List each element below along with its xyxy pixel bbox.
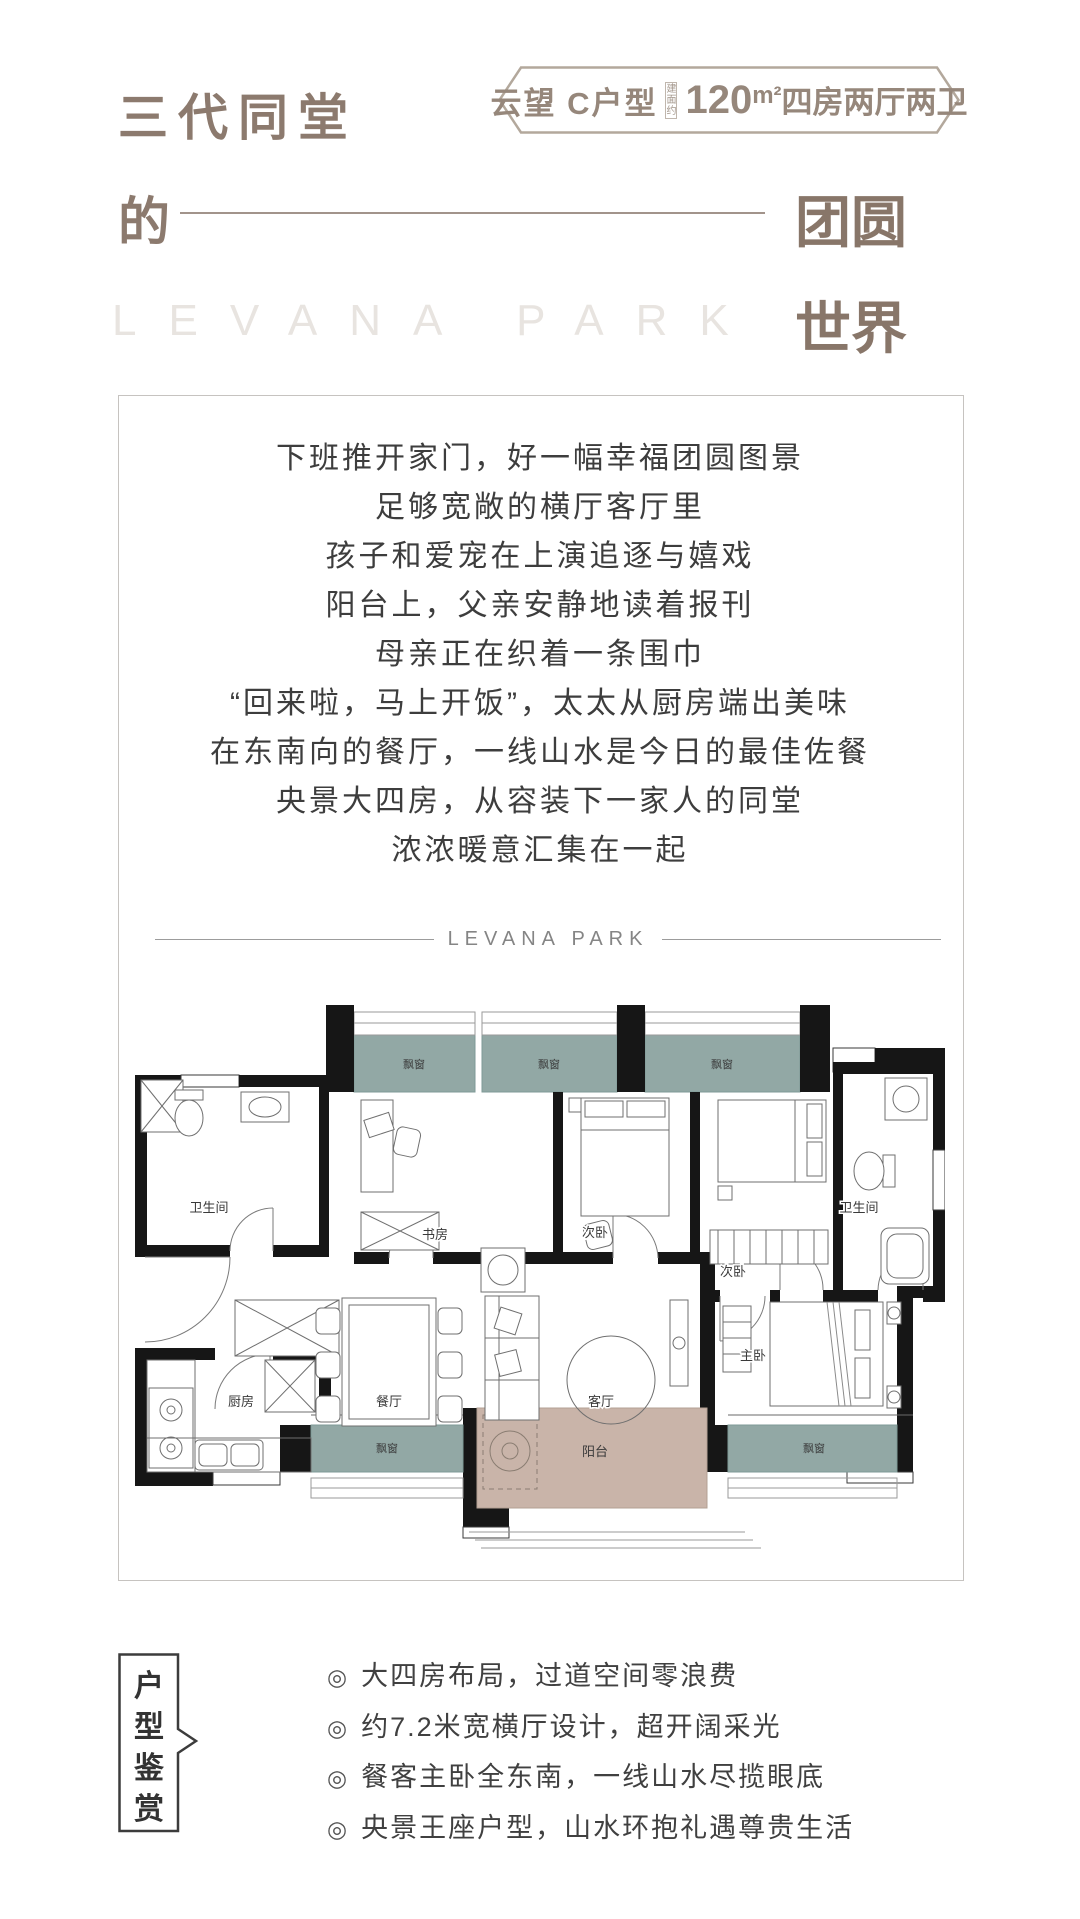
brand-watermark: LEVANA PARK xyxy=(112,296,761,346)
dining-label: 餐厅 xyxy=(376,1394,402,1409)
badge-area-rooms: 四房两厅两卫 xyxy=(782,77,968,122)
poem-line: 阳台上，父亲安静地读着报刊 xyxy=(118,581,962,630)
highlight-item: ◎大四房布局，过道空间零浪费 xyxy=(327,1652,854,1703)
furniture-living xyxy=(481,1248,688,1424)
badge-area: 120m²四房两厅两卫 xyxy=(685,77,967,123)
poem-line: 孩子和爱宠在上演追逐与嬉戏 xyxy=(118,532,962,581)
brand-divider: LEVANA PARK xyxy=(155,928,941,951)
bullet-icon: ◎ xyxy=(327,1664,349,1690)
furniture-bath-left xyxy=(141,1080,289,1136)
bay-window-label: 飘窗 xyxy=(376,1441,398,1455)
page-title-particle: 的 xyxy=(118,180,170,255)
poem-line: 在东南向的餐厅，一线山水是今日的最佳佐餐 xyxy=(118,728,962,777)
living-label: 客厅 xyxy=(588,1394,614,1409)
divider-line-right xyxy=(662,939,941,940)
study-label: 书房 xyxy=(422,1227,448,1242)
badge-unit-name: 云望 C户型 xyxy=(490,78,657,123)
divider-line-left xyxy=(155,939,434,940)
poem-line: “回来啦，马上开饭”，太太从厨房端出美味 xyxy=(118,679,962,728)
poem-line: 足够宽敞的横厅客厅里 xyxy=(118,483,962,532)
bullet-icon: ◎ xyxy=(327,1816,349,1842)
bay-window-label: 飘窗 xyxy=(711,1057,733,1071)
bullet-icon: ◎ xyxy=(327,1765,349,1791)
divider-brand-text: LEVANA PARK xyxy=(448,928,649,951)
master-label: 主卧 xyxy=(740,1348,766,1363)
balcony-label: 阳台 xyxy=(582,1444,608,1459)
highlight-item: ◎餐客主卧全东南，一线山水尽揽眼底 xyxy=(327,1753,854,1804)
poem-line: 下班推开家门，好一幅幸福团圆图景 xyxy=(118,434,962,483)
floor-plan: 飘窗 飘窗 飘窗 xyxy=(133,1000,945,1580)
badge-area-number: 120 xyxy=(685,78,752,123)
bay-window-label: 飘窗 xyxy=(538,1057,560,1071)
bathroom-label: 卫生间 xyxy=(189,1200,228,1215)
bedroom-label: 次卧 xyxy=(720,1264,746,1279)
furniture-bath-right xyxy=(854,1078,929,1284)
bullet-icon: ◎ xyxy=(327,1715,349,1741)
kitchen-label: 厨房 xyxy=(228,1394,254,1409)
title-right-bottom: 世界 xyxy=(795,284,963,365)
poem-line: 母亲正在织着一条围巾 xyxy=(118,630,962,679)
page-title: 三代同堂 xyxy=(118,78,358,150)
title-divider-line xyxy=(180,212,765,214)
poem-block: 下班推开家门，好一幅幸福团圆图景 足够宽敞的横厅客厅里 孩子和爱宠在上演追逐与嬉… xyxy=(118,434,962,875)
bay-window-label: 飘窗 xyxy=(403,1057,425,1071)
poem-line: 央景大四房，从容装下一家人的同堂 xyxy=(118,777,962,826)
poem-line: 浓浓暖意汇集在一起 xyxy=(118,826,962,875)
badge-area-prefix: 建面约 xyxy=(665,82,677,119)
highlight-item: ◎约7.2米宽横厅设计，超开阔采光 xyxy=(327,1703,854,1754)
balcony: 阳台 xyxy=(477,1408,707,1508)
highlight-item: ◎央景王座户型，山水环抱礼遇尊贵生活 xyxy=(327,1804,854,1855)
bathroom-label: 卫生间 xyxy=(839,1200,878,1215)
badge-area-unit: m² xyxy=(752,82,781,110)
title-right-top: 团圆 xyxy=(795,178,963,259)
bedroom-label: 次卧 xyxy=(582,1225,608,1240)
bay-window-label: 飘窗 xyxy=(803,1441,825,1455)
highlights-tag-label: 户型鉴赏 xyxy=(132,1666,166,1830)
highlights-list: ◎大四房布局，过道空间零浪费 ◎约7.2米宽横厅设计，超开阔采光 ◎餐客主卧全东… xyxy=(327,1652,854,1854)
unit-type-badge: 云望 C户型 建面约 120m²四房两厅两卫 xyxy=(498,66,960,134)
furniture-bedroom3 xyxy=(710,1100,828,1264)
bay-windows-top: 飘窗 飘窗 飘窗 xyxy=(354,1012,800,1092)
